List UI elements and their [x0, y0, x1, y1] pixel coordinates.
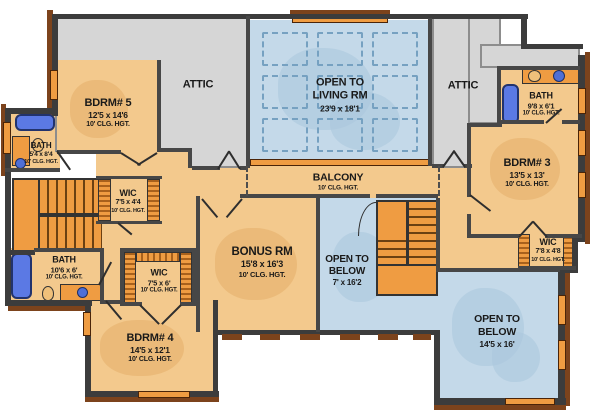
- room-label-attic-left: ATTIC: [183, 78, 214, 91]
- wall: [562, 120, 580, 124]
- wall: [192, 166, 220, 170]
- room-label-bonus: BONUS RM 15'8 x 16'3 10' CLG. HGT.: [231, 245, 292, 279]
- wall: [436, 198, 440, 272]
- room-label-bdrm4: BDRM# 4 14'5 x 12'1 10' CLG. HGT.: [127, 332, 174, 364]
- exterior-trim: [8, 306, 90, 311]
- wall: [5, 168, 60, 172]
- bathtub-icon: [11, 253, 32, 299]
- bathtub-icon: [15, 114, 55, 131]
- toilet-icon: [528, 70, 541, 82]
- roof-ledge-trim: [340, 334, 360, 340]
- wall: [500, 120, 544, 124]
- wic-upper-wall: [98, 179, 111, 221]
- wall: [5, 168, 11, 254]
- wall: [120, 248, 124, 304]
- window: [138, 391, 190, 398]
- room-label-wic-right: WIC 7'8 x 4'8 10' CLG. HGT.: [531, 237, 565, 263]
- wall: [5, 300, 92, 306]
- roof-ledge-trim: [300, 334, 320, 340]
- window: [83, 312, 91, 336]
- wall: [188, 148, 192, 168]
- wic-right-wall: [518, 234, 530, 268]
- wall: [434, 332, 440, 404]
- roof-ledge-trim: [260, 334, 280, 340]
- window: [558, 295, 566, 325]
- wall: [497, 66, 580, 70]
- exterior-trim: [565, 268, 570, 406]
- room-label-open-living: OPEN TO LIVING RM 23'9 x 18'1: [312, 76, 367, 113]
- room-label-open-below-center: OPEN TO BELOW 7' x 16'2: [325, 254, 368, 288]
- wall: [34, 248, 104, 252]
- sink-icon: [77, 287, 88, 298]
- room-label-wic-upper-left: WIC 7'5 x 4'4 10' CLG. HGT.: [111, 188, 145, 214]
- wall: [5, 108, 58, 114]
- wall: [316, 198, 320, 332]
- wall: [240, 194, 370, 198]
- wall: [428, 18, 432, 166]
- staircase-left: [12, 178, 102, 252]
- room-label-bath-lower-left: BATH 10'6 x 6' 10' CLG. HGT.: [46, 254, 83, 281]
- exterior-trim: [434, 405, 566, 410]
- window: [578, 88, 586, 114]
- wall: [52, 14, 528, 19]
- wic-lower-wall: [180, 252, 192, 304]
- wall: [5, 250, 11, 306]
- wall: [196, 196, 200, 332]
- wall: [376, 194, 438, 198]
- wic-lower-wall-top: [136, 252, 180, 262]
- staircase-center: [376, 200, 438, 296]
- room-label-open-below-right: OPEN TO BELOW 14'5 x 16': [474, 313, 520, 349]
- window: [578, 172, 586, 198]
- wall: [246, 16, 250, 168]
- wall: [52, 14, 58, 116]
- window: [3, 122, 11, 154]
- roof-ledge-trim: [413, 334, 431, 340]
- room-label-bdrm5: BDRM# 5 12'5 x 14'6 10' CLG. HGT.: [85, 97, 132, 129]
- room-label-bdrm3: BDRM# 3 13'5 x 13' 10' CLG. HGT.: [504, 157, 551, 189]
- floor-plan-canvas: ATTIC BDRM# 5 12'5 x 14'6 10' CLG. HGT. …: [0, 0, 600, 416]
- window: [558, 340, 566, 370]
- roof-ledge: [213, 330, 440, 335]
- window: [505, 398, 555, 405]
- wall: [518, 266, 576, 270]
- room-label-balcony: BALCONY 10' CLG. HGT.: [313, 172, 364, 193]
- wic-upper-wall: [147, 179, 160, 221]
- wall: [157, 60, 161, 152]
- balcony-rail: [250, 159, 430, 166]
- wall: [96, 221, 162, 224]
- wic-lower-wall: [124, 252, 136, 304]
- railing-dashed: [438, 166, 440, 196]
- room-label-bath-upper-left: BATH 5'4 x 8'4 10' CLG. HGT.: [24, 141, 58, 165]
- sink-icon: [553, 70, 565, 82]
- window: [578, 130, 586, 156]
- wall: [497, 66, 501, 126]
- roof-ledge-trim: [222, 334, 242, 340]
- room-label-bath-right: BATH 9'8 x 6'1 10' CLG. HGT.: [523, 90, 560, 117]
- wall: [467, 123, 471, 197]
- roof-ledge-trim: [378, 334, 398, 340]
- wall: [100, 300, 124, 304]
- wall: [521, 44, 583, 49]
- wall: [96, 176, 162, 179]
- bathtub-icon: [502, 84, 519, 124]
- wall: [120, 248, 196, 252]
- toilet-icon: [42, 286, 54, 301]
- railing-dashed: [246, 166, 248, 196]
- window: [50, 70, 58, 100]
- wall: [57, 150, 121, 154]
- wall: [180, 302, 196, 306]
- wall: [213, 300, 218, 397]
- wall: [467, 123, 502, 127]
- room-label-wic-lower-left: WIC 7'5 x 6' 10' CLG. HGT.: [141, 267, 178, 294]
- wall: [467, 234, 519, 238]
- room-label-attic-right: ATTIC: [448, 79, 479, 92]
- wall: [558, 270, 565, 405]
